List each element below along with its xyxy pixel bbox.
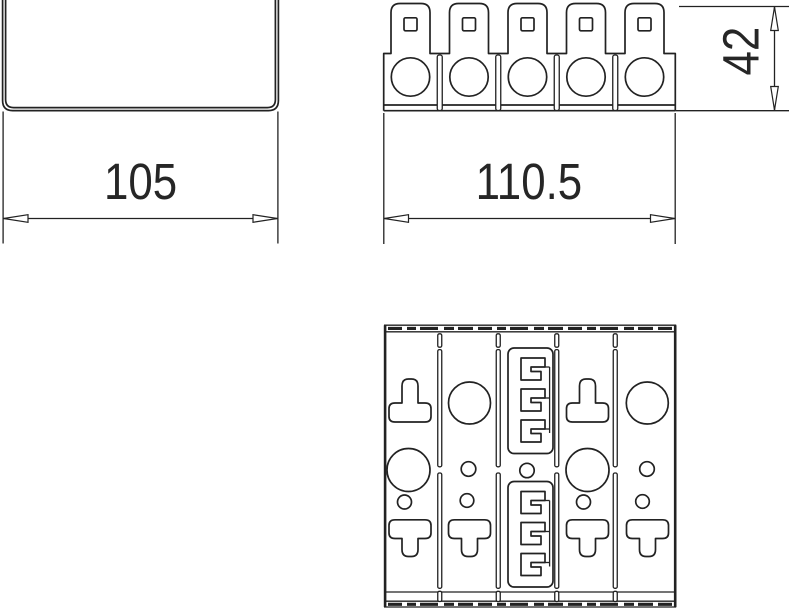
tee-slot-up bbox=[567, 379, 609, 422]
screw-hole bbox=[450, 58, 488, 96]
divider-slot bbox=[613, 591, 617, 601]
meander-tooth bbox=[521, 358, 545, 380]
tab-square-hole bbox=[638, 18, 651, 31]
divider-slot bbox=[613, 350, 617, 467]
arrowhead-up bbox=[771, 7, 779, 31]
dimension-label-block-width: 110.5 bbox=[383, 156, 675, 207]
small-hole bbox=[636, 495, 650, 509]
screw-hole bbox=[391, 58, 429, 96]
drawing-svg bbox=[0, 0, 794, 609]
block-body bbox=[384, 4, 676, 111]
arrowhead-left bbox=[384, 215, 408, 223]
divider-slot bbox=[496, 473, 500, 588]
front-divider-slot bbox=[613, 55, 618, 111]
divider-slot bbox=[555, 591, 559, 601]
dimension-label-block-height: 42 bbox=[716, 7, 767, 97]
arrowhead-right bbox=[651, 215, 675, 223]
meander-tooth bbox=[521, 554, 545, 576]
divider-slot bbox=[555, 473, 559, 588]
small-hole bbox=[460, 494, 474, 508]
divider-slot bbox=[438, 473, 442, 588]
front-divider-slot bbox=[554, 55, 559, 111]
tab-square-hole bbox=[404, 18, 417, 31]
large-hole bbox=[387, 449, 430, 492]
divider-slot bbox=[613, 334, 617, 347]
divider-slot bbox=[496, 350, 500, 467]
center-small-hole bbox=[520, 463, 534, 477]
divider-slot bbox=[438, 334, 442, 347]
meander-tooth bbox=[521, 389, 545, 411]
tee-slot-down bbox=[567, 520, 609, 557]
dimension-value: 110.5 bbox=[476, 156, 583, 207]
screw-hole bbox=[625, 58, 663, 96]
front-divider-slot bbox=[496, 55, 501, 111]
terminal-block-bottom-view bbox=[384, 325, 676, 607]
tab-square-hole bbox=[521, 18, 534, 31]
arrowhead-left bbox=[4, 215, 28, 223]
divider-slot bbox=[438, 350, 442, 467]
divider-slot bbox=[613, 473, 617, 588]
front-divider-slot bbox=[437, 55, 442, 111]
large-hole bbox=[566, 449, 609, 492]
channel-outer-profile bbox=[3, 0, 279, 111]
tee-slot-down bbox=[627, 520, 669, 557]
small-hole bbox=[398, 495, 412, 509]
technical-drawing-canvas: 105 110.5 42 bbox=[0, 0, 794, 609]
screw-hole bbox=[567, 58, 605, 96]
small-hole bbox=[577, 495, 591, 509]
meander-tooth bbox=[521, 420, 545, 442]
dimension-value: 105 bbox=[104, 156, 177, 207]
tee-slot-up bbox=[389, 379, 431, 422]
divider-slot bbox=[438, 591, 442, 601]
tab-square-hole bbox=[463, 18, 476, 31]
channel-inner-profile bbox=[6, 0, 276, 108]
tee-slot-down bbox=[449, 520, 491, 557]
divider-slot bbox=[555, 350, 559, 467]
meander-tooth bbox=[521, 523, 545, 545]
small-hole bbox=[461, 462, 476, 477]
dimension-value: 42 bbox=[716, 27, 767, 76]
meander-tooth bbox=[521, 492, 545, 514]
tab-square-hole bbox=[580, 18, 593, 31]
divider-slot bbox=[496, 591, 500, 601]
segment-cutouts bbox=[387, 348, 669, 587]
large-hole bbox=[449, 382, 491, 424]
dimension-label-channel-width: 105 bbox=[3, 156, 278, 207]
divider-slot bbox=[496, 334, 500, 347]
divider-slot bbox=[555, 334, 559, 347]
tee-slot-down bbox=[389, 520, 431, 557]
divider-slots bbox=[438, 334, 618, 602]
arrowhead-down bbox=[771, 87, 779, 111]
arrowhead-right bbox=[253, 215, 277, 223]
large-hole bbox=[626, 382, 668, 424]
small-hole bbox=[640, 462, 655, 477]
screw-hole bbox=[508, 58, 546, 96]
